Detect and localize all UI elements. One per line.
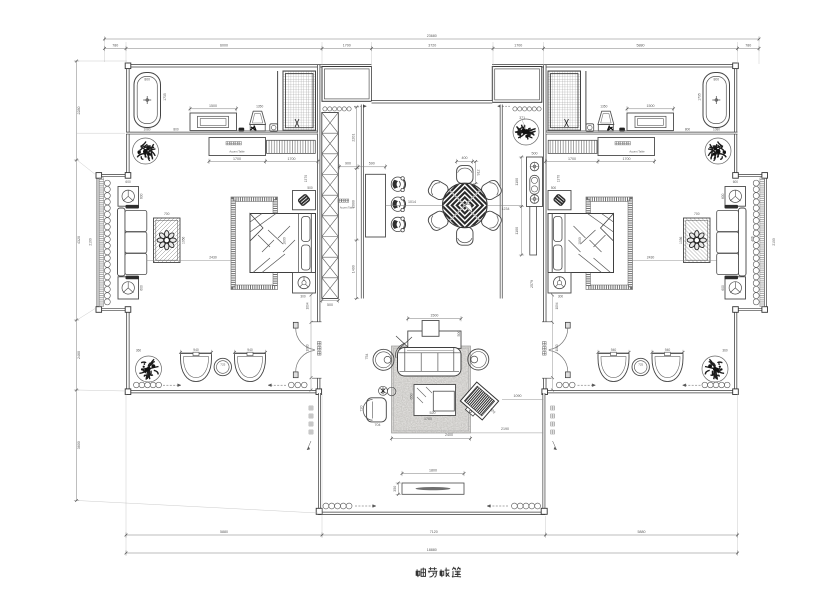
svg-text:600: 600 — [733, 180, 739, 184]
svg-text:1400: 1400 — [352, 265, 356, 273]
svg-text:1700: 1700 — [233, 157, 241, 161]
svg-text:940: 940 — [193, 348, 199, 352]
svg-text:350: 350 — [393, 486, 397, 492]
svg-text:1500: 1500 — [647, 104, 655, 108]
svg-text:2579: 2579 — [530, 280, 534, 288]
svg-text:3720: 3720 — [428, 43, 436, 47]
svg-text:600: 600 — [140, 285, 144, 291]
svg-text:1735: 1735 — [697, 93, 701, 101]
svg-text:1000: 1000 — [306, 344, 310, 351]
svg-text:1700: 1700 — [288, 157, 296, 161]
svg-text:800: 800 — [713, 77, 719, 81]
svg-text:800: 800 — [173, 128, 179, 132]
svg-text:754: 754 — [365, 354, 369, 360]
svg-text:780: 780 — [112, 43, 118, 47]
svg-text:1370: 1370 — [304, 175, 308, 183]
svg-text:1370: 1370 — [557, 175, 561, 183]
svg-text:5880: 5880 — [638, 530, 646, 534]
svg-text:590: 590 — [369, 161, 375, 165]
svg-text:1080: 1080 — [713, 128, 720, 132]
svg-text:912: 912 — [477, 170, 481, 176]
svg-text:600: 600 — [125, 180, 131, 184]
svg-text:2460: 2460 — [77, 351, 81, 359]
svg-text:720: 720 — [359, 406, 363, 412]
svg-text:940: 940 — [665, 348, 671, 352]
svg-text:1800: 1800 — [429, 468, 437, 472]
svg-text:500: 500 — [532, 151, 538, 155]
svg-text:Accent Table: Accent Table — [629, 150, 645, 154]
svg-text:1700: 1700 — [623, 157, 631, 161]
svg-text:1056: 1056 — [182, 236, 186, 244]
svg-text:18880: 18880 — [427, 548, 437, 552]
svg-text:1700: 1700 — [424, 417, 432, 421]
svg-text:1700: 1700 — [343, 43, 351, 47]
svg-text:6000: 6000 — [220, 43, 228, 47]
svg-text:1094: 1094 — [306, 302, 310, 309]
svg-text:700: 700 — [694, 212, 700, 216]
svg-text:520: 520 — [430, 411, 436, 415]
svg-text:2280: 2280 — [77, 107, 81, 115]
svg-text:1014: 1014 — [408, 200, 416, 204]
svg-text:600: 600 — [721, 193, 725, 199]
svg-text:1000: 1000 — [555, 344, 559, 351]
svg-text:360: 360 — [136, 349, 142, 353]
svg-text:1700: 1700 — [568, 157, 576, 161]
svg-text:600: 600 — [721, 285, 725, 291]
svg-text:300: 300 — [300, 295, 306, 299]
svg-text:1100: 1100 — [515, 178, 519, 186]
svg-text:940: 940 — [247, 348, 253, 352]
svg-text:600: 600 — [140, 193, 144, 199]
svg-text:Accent Table: Accent Table — [229, 150, 245, 154]
svg-text:500: 500 — [327, 303, 333, 307]
svg-text:2400: 2400 — [445, 433, 453, 437]
svg-text:1356: 1356 — [679, 236, 683, 244]
svg-text:1500: 1500 — [209, 104, 217, 108]
svg-text:1350: 1350 — [600, 105, 607, 109]
svg-text:5880: 5880 — [220, 530, 228, 534]
svg-text:1800: 1800 — [282, 237, 286, 245]
svg-text:2430: 2430 — [209, 255, 217, 259]
svg-text:1090: 1090 — [514, 394, 522, 398]
svg-text:650: 650 — [409, 394, 413, 400]
svg-text:900: 900 — [345, 161, 351, 165]
svg-text:406: 406 — [751, 236, 755, 242]
svg-text:940: 940 — [611, 348, 617, 352]
svg-text:704: 704 — [375, 423, 381, 427]
svg-text:1350: 1350 — [256, 105, 263, 109]
svg-text:500: 500 — [551, 186, 557, 190]
svg-text:500: 500 — [457, 331, 461, 337]
svg-text:800: 800 — [144, 77, 150, 81]
svg-text:400: 400 — [462, 156, 468, 160]
svg-text:Accent Table: Accent Table — [340, 207, 355, 210]
svg-text:1094: 1094 — [555, 302, 559, 309]
svg-text:2190: 2190 — [501, 427, 509, 431]
svg-text:5880: 5880 — [637, 43, 645, 47]
svg-text:2430: 2430 — [647, 255, 655, 259]
svg-text:3600: 3600 — [77, 441, 81, 449]
svg-text:2100: 2100 — [772, 238, 776, 246]
svg-text:1100: 1100 — [515, 227, 519, 235]
svg-text:1700: 1700 — [514, 43, 522, 47]
svg-text:725: 725 — [220, 362, 225, 366]
svg-text:780: 780 — [745, 43, 751, 47]
svg-text:1735: 1735 — [163, 93, 167, 101]
svg-text:7120: 7120 — [430, 530, 438, 534]
svg-text:725: 725 — [638, 362, 643, 366]
svg-text:2100: 2100 — [89, 238, 93, 246]
svg-text:2201: 2201 — [352, 134, 356, 142]
svg-text:1500: 1500 — [430, 314, 438, 318]
svg-text:700: 700 — [164, 212, 170, 216]
svg-text:360: 360 — [722, 349, 728, 353]
svg-text:371: 371 — [519, 116, 525, 120]
svg-text:500: 500 — [307, 186, 313, 190]
svg-text:4320: 4320 — [77, 236, 81, 244]
svg-text:1080: 1080 — [143, 128, 150, 132]
svg-text:300: 300 — [558, 295, 564, 299]
svg-text:800: 800 — [685, 128, 691, 132]
svg-text:23680: 23680 — [427, 34, 437, 38]
svg-text:1800: 1800 — [578, 237, 582, 245]
svg-text:1234: 1234 — [502, 207, 510, 211]
